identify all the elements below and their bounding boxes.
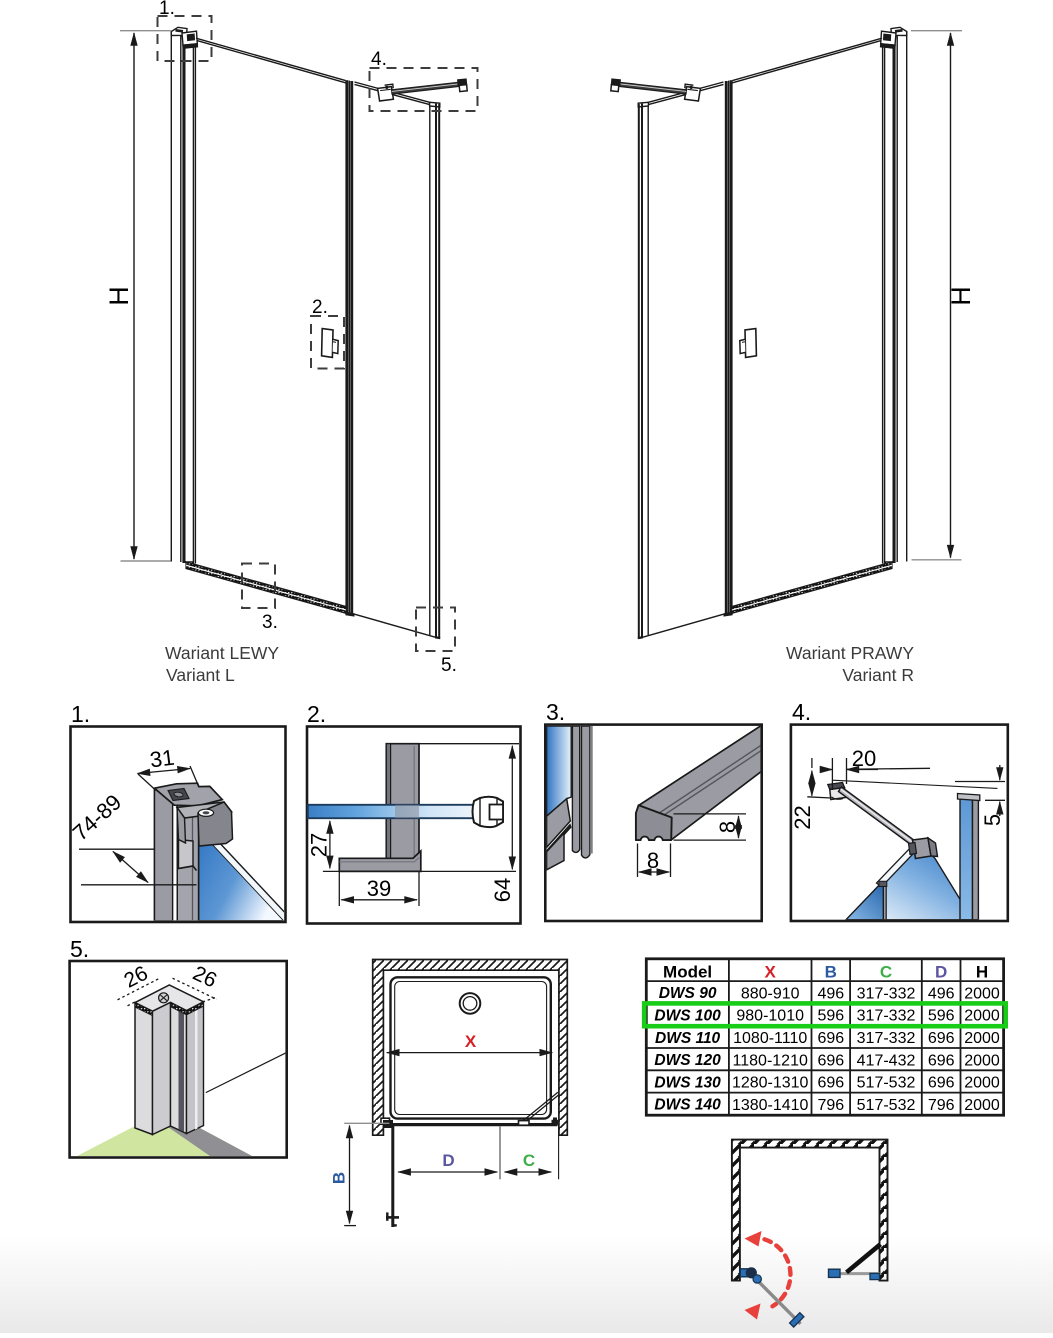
svg-text:980-1010: 980-1010	[736, 1008, 804, 1025]
svg-text:Model: Model	[663, 963, 712, 982]
svg-text:2000: 2000	[964, 985, 1000, 1002]
svg-text:517-532: 517-532	[857, 1097, 916, 1114]
svg-text:4.: 4.	[371, 49, 387, 70]
svg-text:2.: 2.	[307, 701, 326, 727]
svg-text:1080-1110: 1080-1110	[733, 1030, 807, 1047]
svg-text:3.: 3.	[262, 612, 278, 633]
svg-text:D: D	[442, 1151, 454, 1170]
svg-text:3.: 3.	[546, 699, 565, 725]
svg-text:8: 8	[647, 848, 659, 873]
svg-text:5.: 5.	[70, 936, 89, 962]
svg-text:DWS 90: DWS 90	[659, 985, 717, 1002]
svg-text:317-332: 317-332	[857, 985, 916, 1002]
svg-text:317-332: 317-332	[857, 1008, 916, 1025]
svg-text:Wariant PRAWY: Wariant PRAWY	[786, 643, 914, 663]
svg-text:417-432: 417-432	[857, 1052, 916, 1069]
svg-text:27: 27	[307, 833, 332, 857]
svg-text:796: 796	[928, 1097, 955, 1114]
svg-text:B: B	[330, 1172, 349, 1184]
svg-text:D: D	[935, 963, 947, 982]
svg-text:696: 696	[817, 1052, 844, 1069]
svg-text:H: H	[946, 286, 976, 306]
svg-text:Wariant LEWY: Wariant LEWY	[165, 643, 279, 663]
svg-text:2000: 2000	[964, 1097, 1000, 1114]
svg-text:1180-1210: 1180-1210	[733, 1052, 808, 1069]
svg-text:880-910: 880-910	[741, 985, 800, 1002]
svg-text:C: C	[880, 963, 892, 982]
svg-text:31: 31	[148, 745, 175, 773]
svg-text:517-532: 517-532	[857, 1075, 916, 1092]
svg-text:DWS 130: DWS 130	[654, 1074, 721, 1091]
svg-text:696: 696	[928, 1052, 955, 1069]
svg-text:22: 22	[790, 805, 815, 829]
svg-text:X: X	[765, 963, 777, 982]
svg-text:DWS 120: DWS 120	[654, 1052, 721, 1069]
svg-text:39: 39	[367, 876, 391, 901]
svg-text:496: 496	[817, 985, 844, 1002]
svg-text:1.: 1.	[159, 0, 175, 19]
svg-text:Variant L: Variant L	[166, 665, 235, 685]
svg-text:H: H	[976, 963, 988, 982]
svg-text:1380-1410: 1380-1410	[732, 1097, 809, 1114]
svg-text:20: 20	[852, 746, 876, 771]
svg-text:DWS 110: DWS 110	[655, 1030, 721, 1047]
svg-text:DWS 140: DWS 140	[654, 1097, 721, 1114]
svg-text:DWS 100: DWS 100	[654, 1008, 721, 1025]
svg-text:B: B	[825, 963, 837, 982]
svg-text:696: 696	[817, 1075, 844, 1092]
svg-text:C: C	[523, 1151, 535, 1170]
svg-text:696: 696	[817, 1030, 844, 1047]
svg-text:2000: 2000	[964, 1008, 1000, 1025]
svg-text:596: 596	[817, 1008, 844, 1025]
svg-text:696: 696	[928, 1075, 955, 1092]
svg-text:64: 64	[490, 878, 515, 902]
svg-text:H: H	[104, 286, 134, 306]
svg-text:796: 796	[817, 1097, 844, 1114]
svg-text:2000: 2000	[964, 1052, 1000, 1069]
svg-text:8: 8	[715, 821, 740, 833]
svg-text:4.: 4.	[792, 699, 811, 725]
svg-text:496: 496	[928, 985, 955, 1002]
svg-text:317-332: 317-332	[857, 1030, 916, 1047]
svg-text:2000: 2000	[964, 1030, 1000, 1047]
svg-text:2.: 2.	[312, 297, 328, 318]
svg-text:1280-1310: 1280-1310	[732, 1075, 809, 1092]
svg-text:5.: 5.	[441, 655, 457, 676]
svg-text:5: 5	[980, 814, 1005, 826]
svg-text:596: 596	[928, 1008, 955, 1025]
svg-text:1.: 1.	[71, 701, 90, 727]
svg-text:X: X	[465, 1032, 477, 1051]
svg-text:Variant R: Variant R	[842, 665, 914, 685]
svg-text:2000: 2000	[964, 1075, 1000, 1092]
svg-text:696: 696	[928, 1030, 955, 1047]
